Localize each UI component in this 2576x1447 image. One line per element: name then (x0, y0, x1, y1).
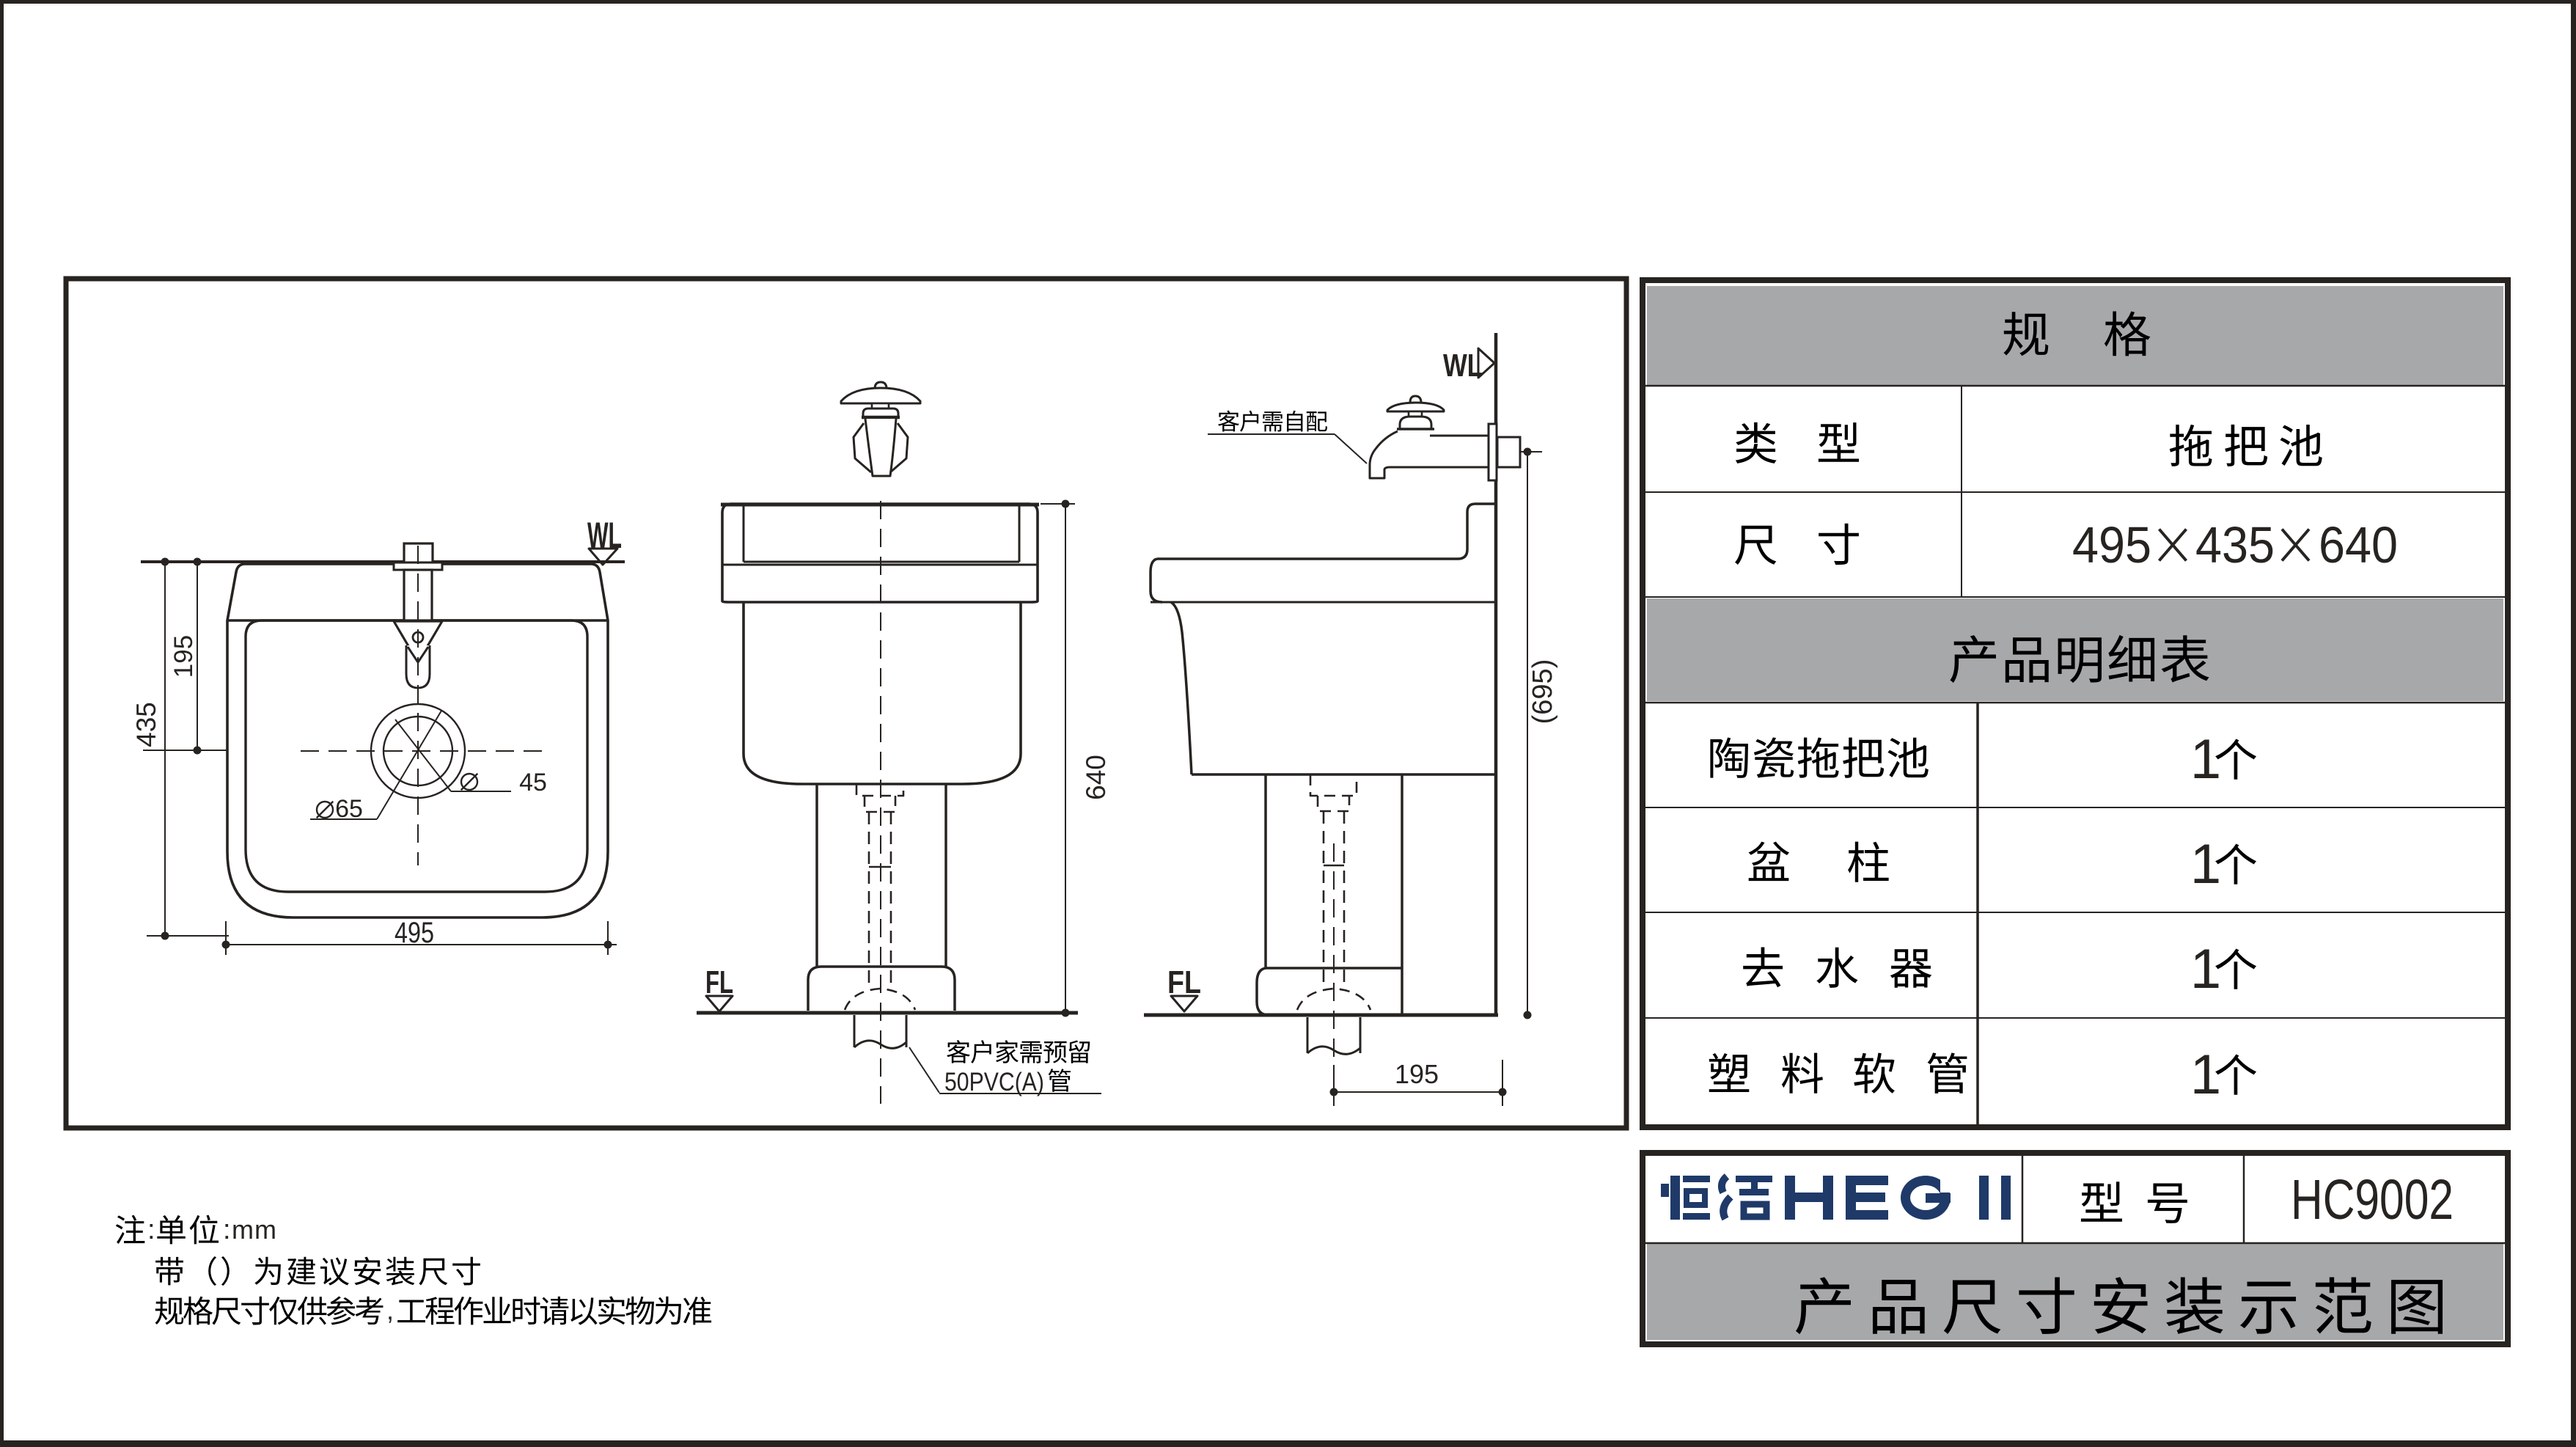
svg-text:WL: WL (1443, 348, 1483, 384)
svg-text:(695): (695) (1527, 659, 1558, 725)
svg-text:495: 495 (2072, 516, 2151, 574)
svg-text:1: 1 (2190, 728, 2221, 791)
svg-text:435: 435 (131, 702, 161, 747)
svg-text:195: 195 (1395, 1059, 1439, 1089)
svg-text::: : (223, 1215, 231, 1245)
svg-text:1: 1 (2190, 938, 2221, 1000)
svg-text:640: 640 (2319, 516, 2398, 574)
svg-text::: : (147, 1215, 155, 1245)
svg-text:495: 495 (395, 917, 434, 949)
svg-text:195: 195 (169, 635, 198, 678)
svg-text:1: 1 (2190, 1044, 2221, 1106)
svg-text:mm: mm (232, 1215, 277, 1245)
svg-text:50PVC(A): 50PVC(A) (944, 1068, 1044, 1096)
svg-text:640: 640 (1081, 755, 1111, 800)
svg-text:1: 1 (2190, 833, 2221, 895)
svg-text:,: , (386, 1295, 394, 1325)
svg-text:45: 45 (519, 769, 547, 796)
svg-text:HC9002: HC9002 (2291, 1168, 2454, 1231)
svg-text:435: 435 (2195, 516, 2275, 574)
